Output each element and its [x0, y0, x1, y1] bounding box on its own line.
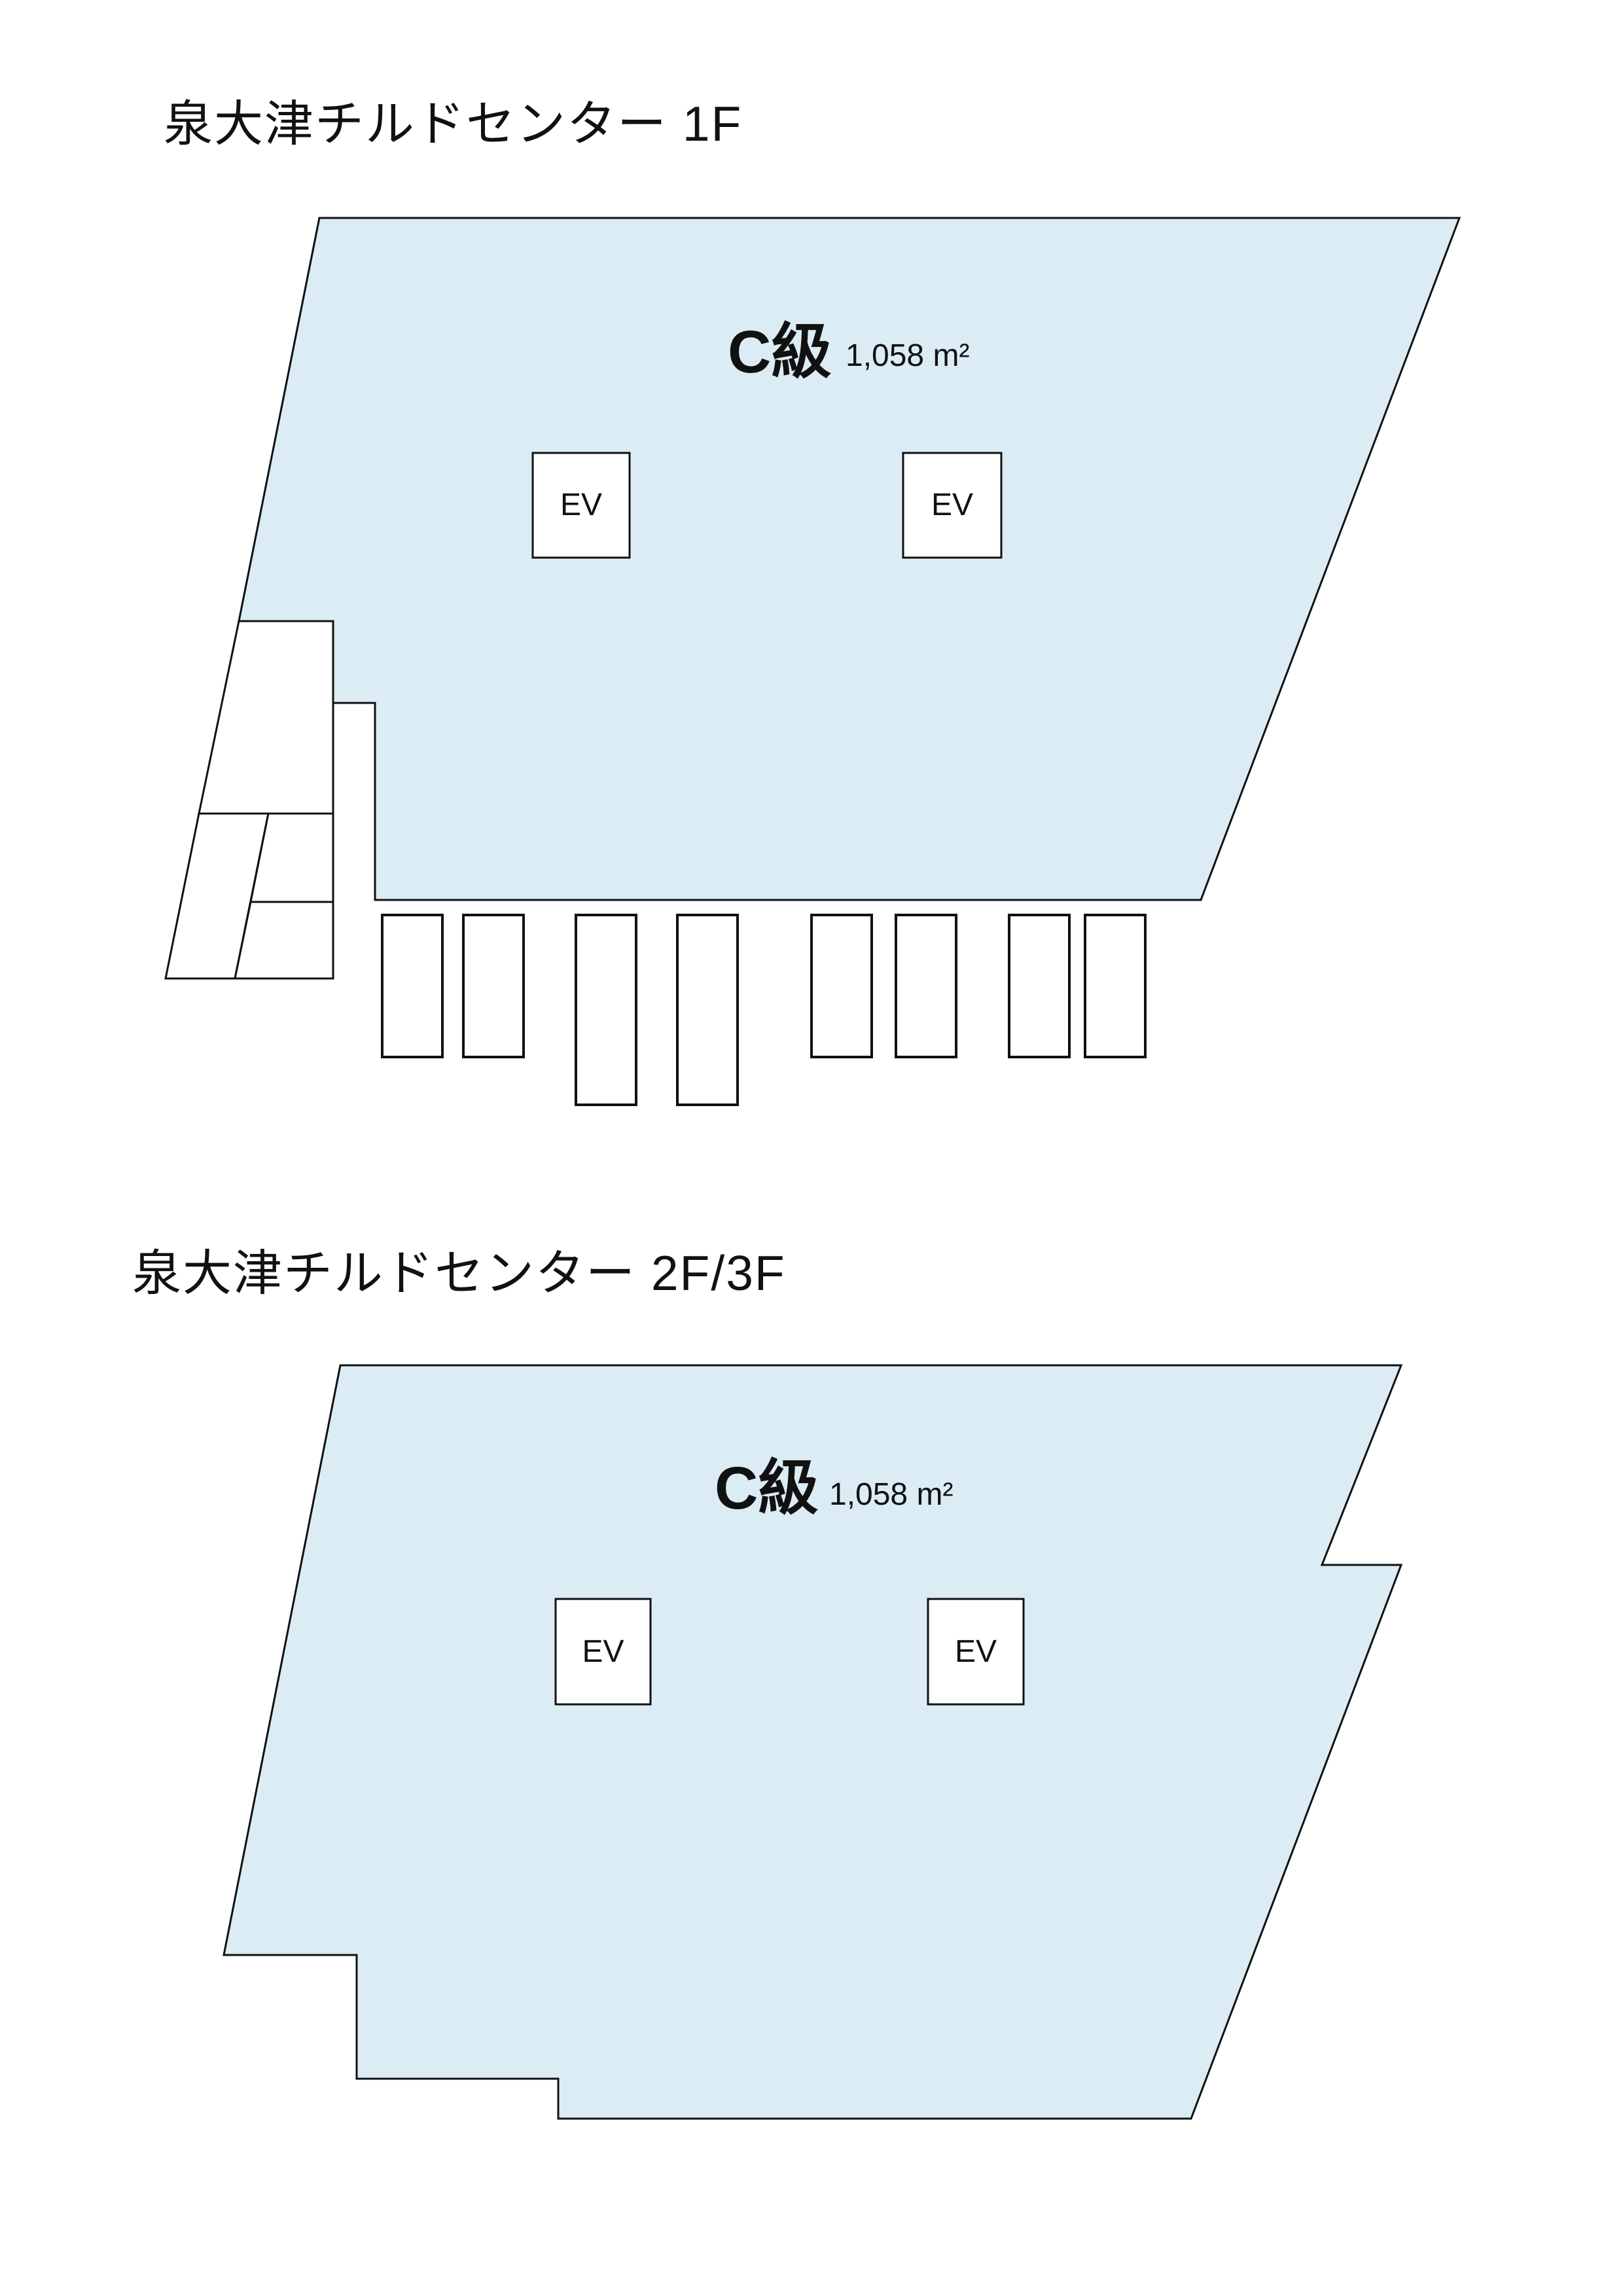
dock-door	[382, 915, 442, 1057]
dock-door	[576, 915, 636, 1105]
dock-door	[677, 915, 738, 1105]
floor1-title: 泉大津チルドセンター 1F	[164, 99, 742, 149]
dock-door	[811, 915, 872, 1057]
floor1-room-d	[235, 902, 333, 978]
floor2-title: 泉大津チルドセンター 2F/3F	[132, 1249, 786, 1298]
floor1-ev2-label: EV	[903, 453, 1001, 558]
floor1-room-a	[199, 621, 333, 814]
dock-door	[463, 915, 524, 1057]
floor-plan-page: 泉大津チルドセンター 1F C級 1,058 m² EV EV 泉大津チルドセン…	[0, 0, 1623, 2296]
floor1-hall-outline	[239, 218, 1459, 900]
floor2-grade-label: C級	[715, 1458, 818, 1518]
floor1-area-label: 1,058 m²	[846, 340, 969, 372]
dock-door	[1009, 915, 1069, 1057]
floor1-grade-label: C級	[728, 322, 831, 382]
floor2-ev2-label: EV	[928, 1599, 1024, 1704]
dock-door	[896, 915, 956, 1057]
dock-door	[1085, 915, 1145, 1057]
floor2-ev1-label: EV	[556, 1599, 651, 1704]
floor1-ev1-label: EV	[533, 453, 630, 558]
floor2-area-label: 1,058 m²	[829, 1479, 953, 1511]
